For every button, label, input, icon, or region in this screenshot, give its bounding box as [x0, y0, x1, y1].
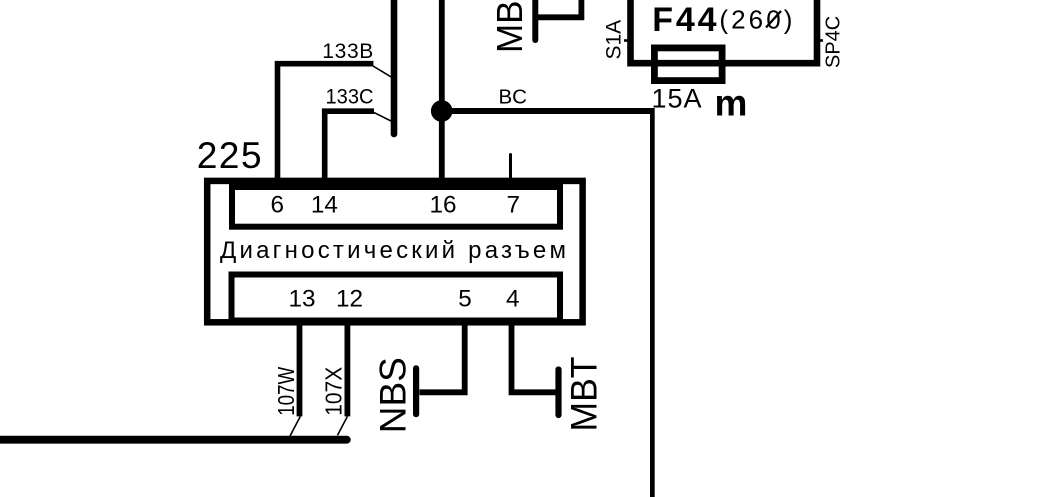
- svg-text:13: 13: [288, 286, 315, 313]
- svg-text:5: 5: [458, 286, 472, 313]
- svg-text:225: 225: [197, 134, 262, 176]
- svg-text:133C: 133C: [326, 86, 374, 109]
- svg-text:Диагностический разъем: Диагностический разъем: [220, 237, 566, 264]
- svg-text:15A: 15A: [652, 84, 702, 114]
- svg-text:133B: 133B: [322, 40, 373, 63]
- svg-text:16: 16: [429, 192, 456, 219]
- svg-text:14: 14: [311, 192, 338, 219]
- svg-text:BC: BC: [499, 86, 528, 109]
- svg-text:7: 7: [507, 192, 521, 219]
- svg-text:6: 6: [271, 192, 285, 219]
- svg-text:SP4C: SP4C: [823, 16, 845, 68]
- svg-text:MB: MB: [489, 1, 530, 54]
- svg-text:12: 12: [336, 286, 363, 313]
- svg-text:S1A: S1A: [603, 20, 626, 60]
- svg-text:(260): (260): [719, 5, 792, 35]
- svg-text:NBS: NBS: [373, 357, 414, 433]
- svg-text:4: 4: [506, 286, 520, 313]
- svg-text:107W: 107W: [273, 367, 299, 416]
- svg-text:F44: F44: [652, 1, 716, 39]
- svg-text:MBT: MBT: [564, 357, 605, 432]
- svg-text:107X: 107X: [320, 367, 346, 416]
- svg-text:m: m: [715, 83, 748, 124]
